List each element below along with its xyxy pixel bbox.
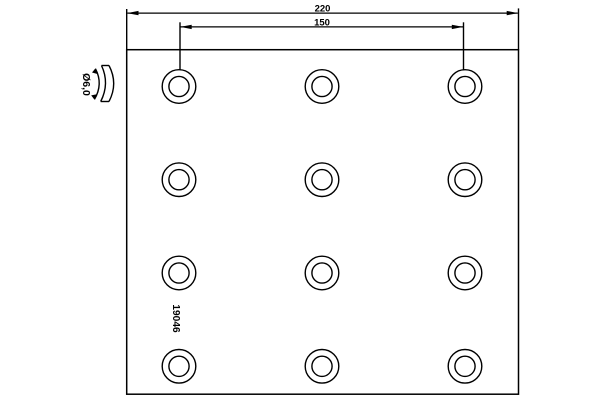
- svg-text:Ø6,0: Ø6,0: [80, 73, 92, 96]
- svg-text:19046: 19046: [170, 304, 181, 333]
- svg-text:220: 220: [315, 4, 331, 15]
- svg-text:150: 150: [314, 17, 330, 28]
